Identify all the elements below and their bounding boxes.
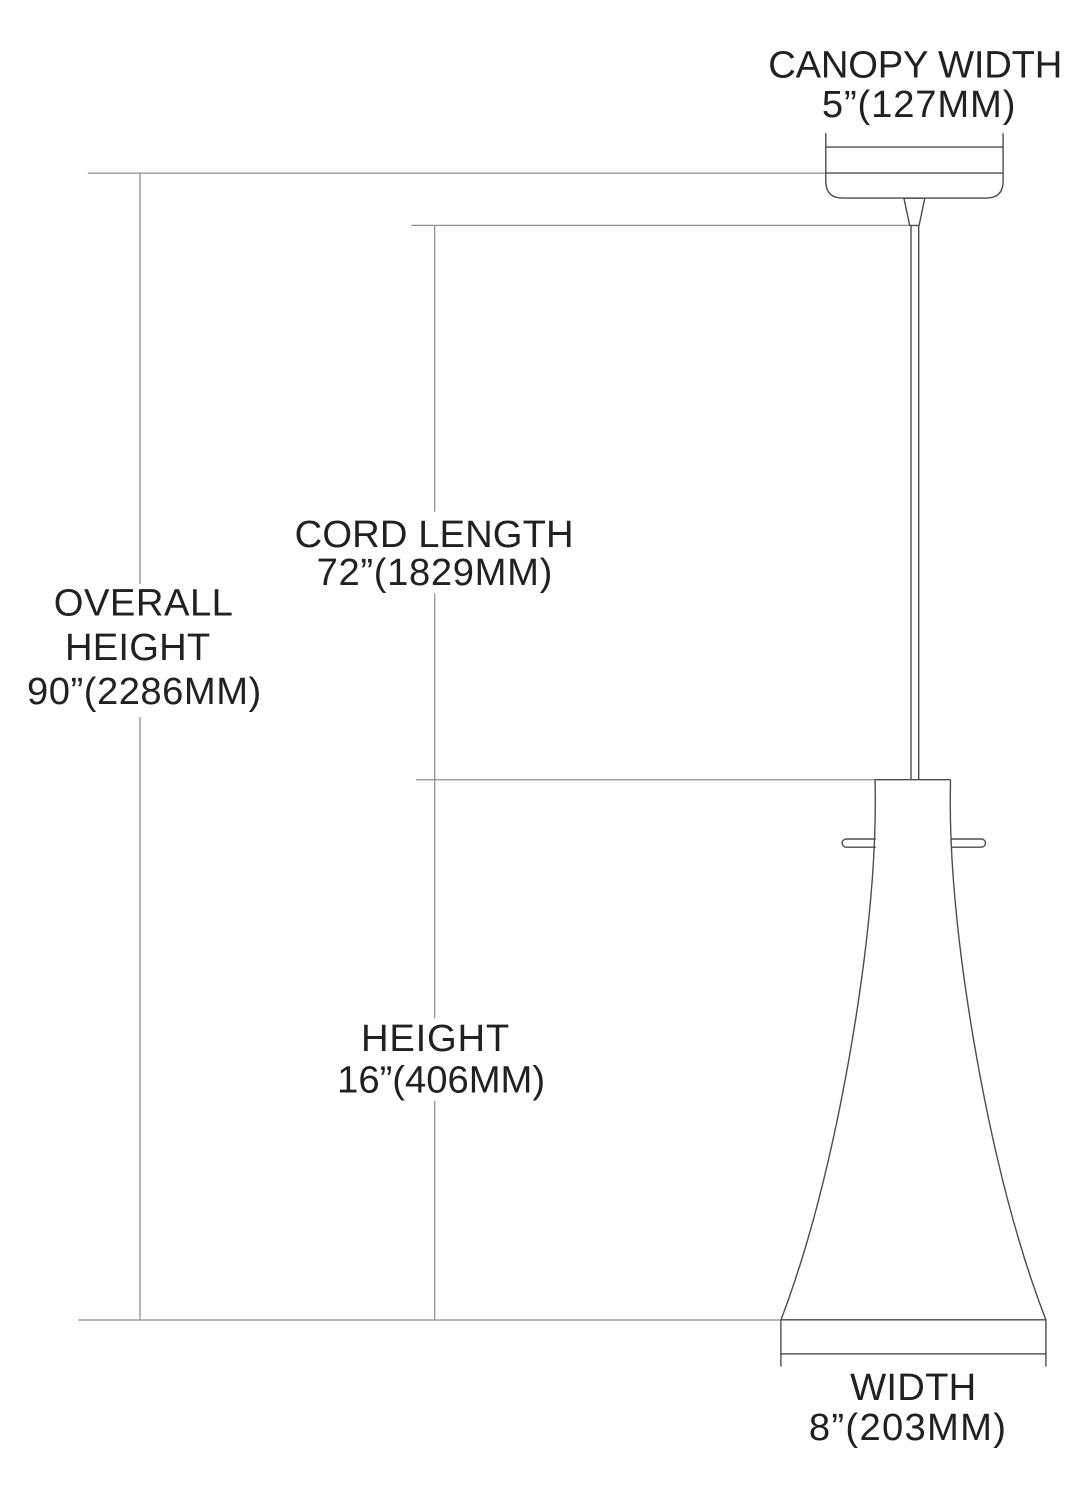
svg-text:72”(1829MM): 72”(1829MM) [317,551,553,594]
svg-text:CORD LENGTH: CORD LENGTH [295,513,574,556]
svg-text:HEIGHT: HEIGHT [65,626,210,669]
svg-text:CANOPY WIDTH: CANOPY WIDTH [768,44,1062,87]
svg-text:90”(2286MM): 90”(2286MM) [27,670,262,713]
svg-text:5”(127MM): 5”(127MM) [822,83,1016,126]
svg-text:16”(406MM): 16”(406MM) [337,1059,545,1102]
svg-text:WIDTH: WIDTH [850,1366,976,1409]
svg-text:OVERALL: OVERALL [54,582,234,625]
svg-text:8”(203MM): 8”(203MM) [809,1406,1007,1449]
svg-text:HEIGHT: HEIGHT [361,1017,510,1060]
